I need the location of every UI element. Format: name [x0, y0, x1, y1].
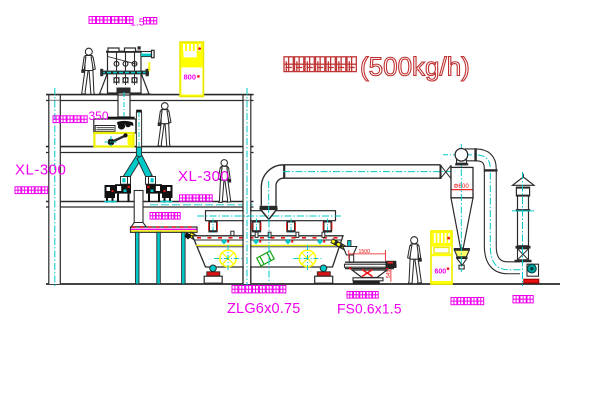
- svg-text:ZLG6x0.75: ZLG6x0.75: [227, 301, 301, 317]
- svg-text:600: 600: [435, 269, 447, 276]
- svg-text:1.5: 1.5: [130, 17, 145, 29]
- svg-text:XL-300: XL-300: [178, 168, 229, 185]
- svg-text:800: 800: [184, 73, 197, 82]
- svg-text:1500: 1500: [359, 249, 371, 255]
- svg-text:350: 350: [89, 109, 109, 123]
- svg-text:(500kg/h): (500kg/h): [360, 52, 470, 82]
- svg-text:FS0.6x1.5: FS0.6x1.5: [337, 302, 402, 317]
- svg-text:XL-300: XL-300: [15, 162, 66, 179]
